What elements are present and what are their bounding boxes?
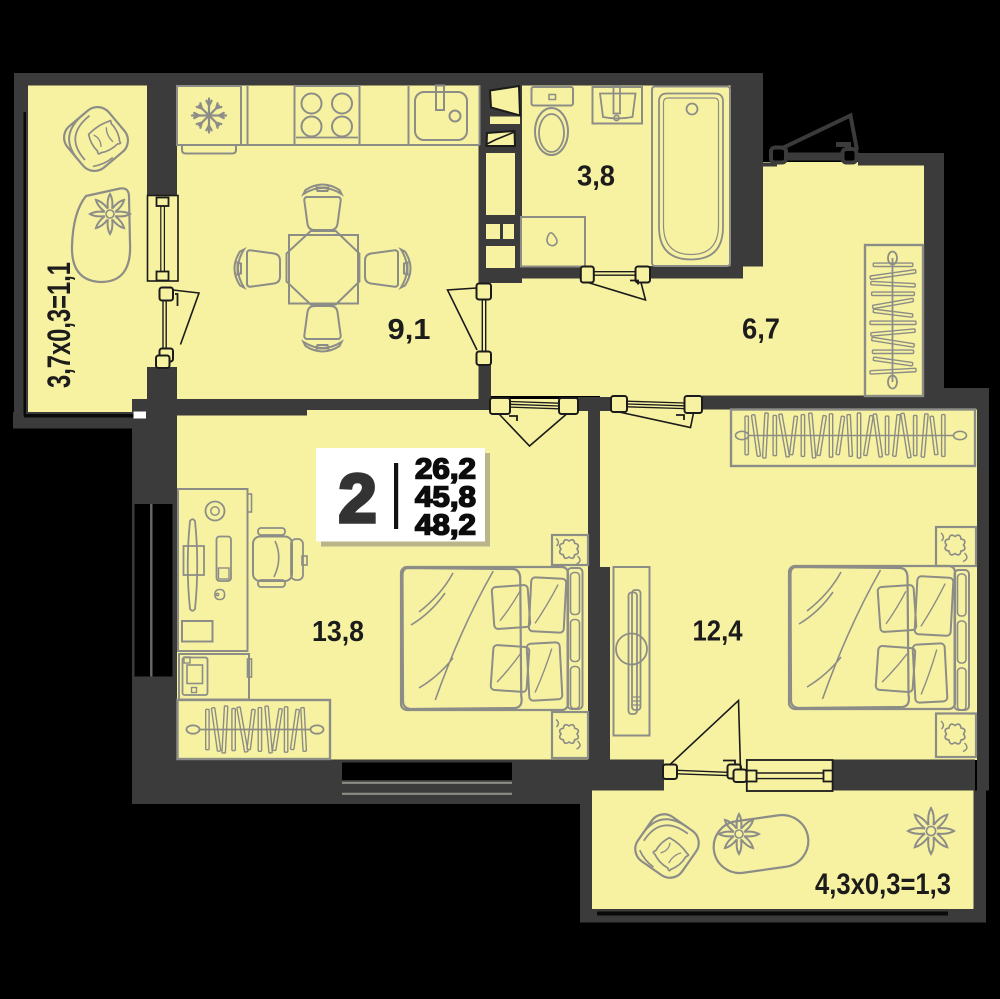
svg-text:6,7: 6,7 — [742, 314, 780, 346]
svg-text:13,8: 13,8 — [312, 616, 364, 648]
svg-text:3,8: 3,8 — [577, 161, 615, 193]
svg-text:48,2: 48,2 — [415, 510, 476, 542]
svg-text:4,3x0,3=1,3: 4,3x0,3=1,3 — [815, 868, 951, 901]
svg-text:12,4: 12,4 — [693, 616, 743, 648]
svg-text:3,7x0,3=1,1: 3,7x0,3=1,1 — [41, 262, 77, 388]
svg-text:2: 2 — [338, 460, 376, 537]
svg-text:9,1: 9,1 — [388, 314, 431, 346]
